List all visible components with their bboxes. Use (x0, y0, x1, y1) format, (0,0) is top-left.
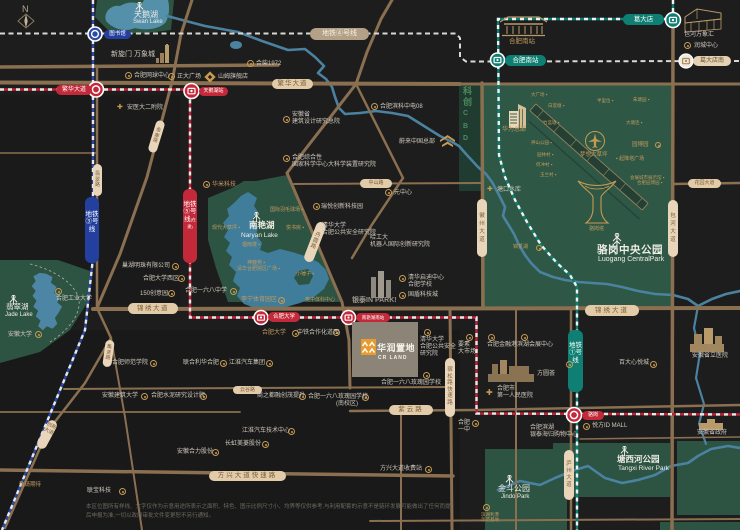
svg-text:N: N (22, 4, 29, 14)
